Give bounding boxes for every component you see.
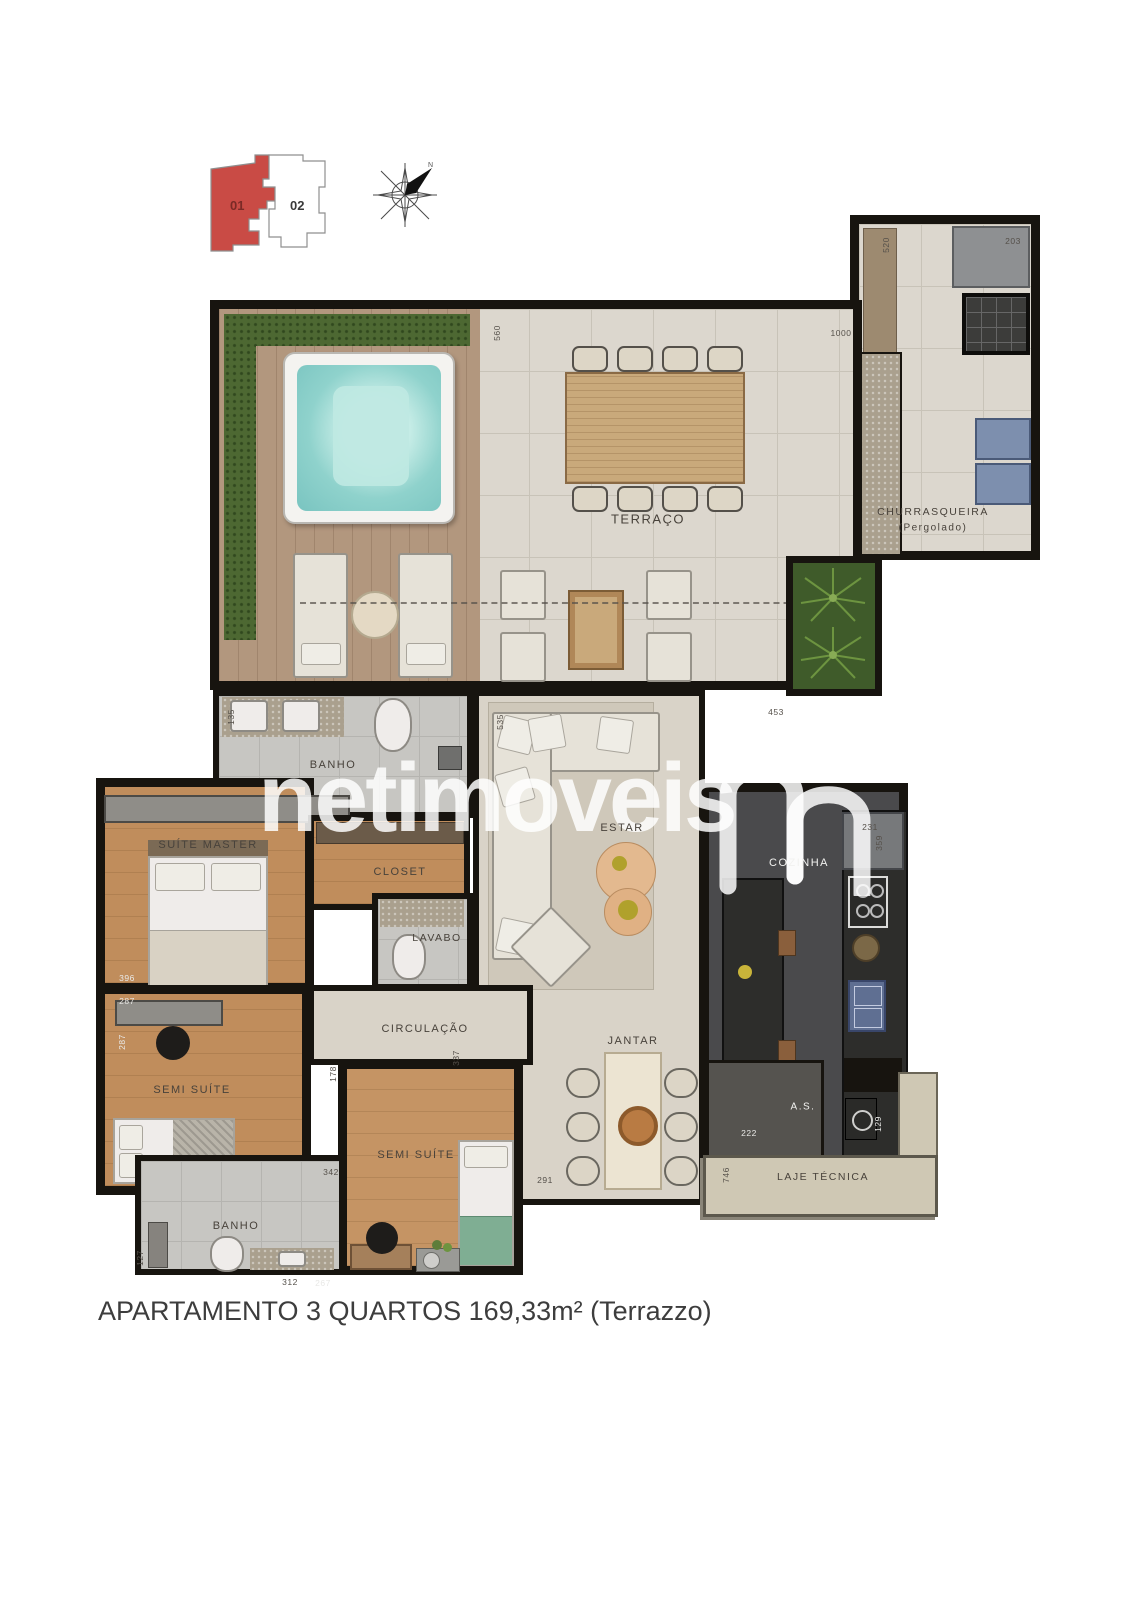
dimension-label: 1000 xyxy=(831,328,852,338)
dimension-label: 231 xyxy=(862,822,878,832)
dimension-label: 129 xyxy=(873,1116,883,1132)
dimension-label: 396 xyxy=(119,973,135,983)
room-label: LAJE TÉCNICA xyxy=(777,1171,869,1183)
room-label: (Pergolado) xyxy=(899,523,968,534)
room-label: SUÍTE MASTER xyxy=(158,839,257,851)
room-label: SEMI SUÍTE xyxy=(153,1084,230,1096)
room-label: ESTAR xyxy=(600,822,643,834)
room-label: CIRCULAÇÃO xyxy=(381,1023,468,1035)
dimension-label: 135 xyxy=(226,709,236,725)
dimension-label: 291 xyxy=(537,1175,553,1185)
room-label: TERRAÇO xyxy=(611,512,685,527)
dimension-label: 178 xyxy=(328,1066,338,1082)
dimension-label: 127 xyxy=(135,1250,145,1266)
dimension-label: 312 xyxy=(282,1277,298,1287)
room-label: CLOSET xyxy=(373,866,426,878)
dimension-label: 203 xyxy=(1005,236,1021,246)
dimension-label: 560 xyxy=(492,325,502,341)
room-label: CHURRASQUEIRA xyxy=(877,506,989,518)
room-label: A.S. xyxy=(791,1102,816,1113)
room-label: BANHO xyxy=(310,759,357,771)
dimension-label: 222 xyxy=(741,1128,757,1138)
dimension-label: 287 xyxy=(119,996,135,1006)
floor-plan-page: 01 02 N xyxy=(0,0,1131,1600)
dimension-label: 535 xyxy=(495,714,505,730)
dimension-label: 520 xyxy=(881,237,891,253)
dimension-label: 453 xyxy=(768,707,784,717)
label-layer: TERRAÇOCHURRASQUEIRA(Pergolado)BANHOSUÍT… xyxy=(0,0,1131,1600)
room-label: SEMI SUÍTE xyxy=(377,1149,454,1161)
plan-caption: APARTAMENTO 3 QUARTOS 169,33m² (Terrazzo… xyxy=(98,1296,712,1327)
dimension-label: 267 xyxy=(315,1278,331,1288)
dimension-label: 342 xyxy=(323,1167,339,1177)
room-label: BANHO xyxy=(213,1220,260,1232)
dimension-label: 337 xyxy=(451,1050,461,1066)
dimension-label: 746 xyxy=(721,1167,731,1183)
room-label: LAVABO xyxy=(412,932,461,944)
dimension-label: 287 xyxy=(117,1034,127,1050)
room-label: COZINHA xyxy=(769,857,829,869)
dimension-label: 359 xyxy=(874,835,884,851)
room-label: JANTAR xyxy=(608,1035,659,1047)
